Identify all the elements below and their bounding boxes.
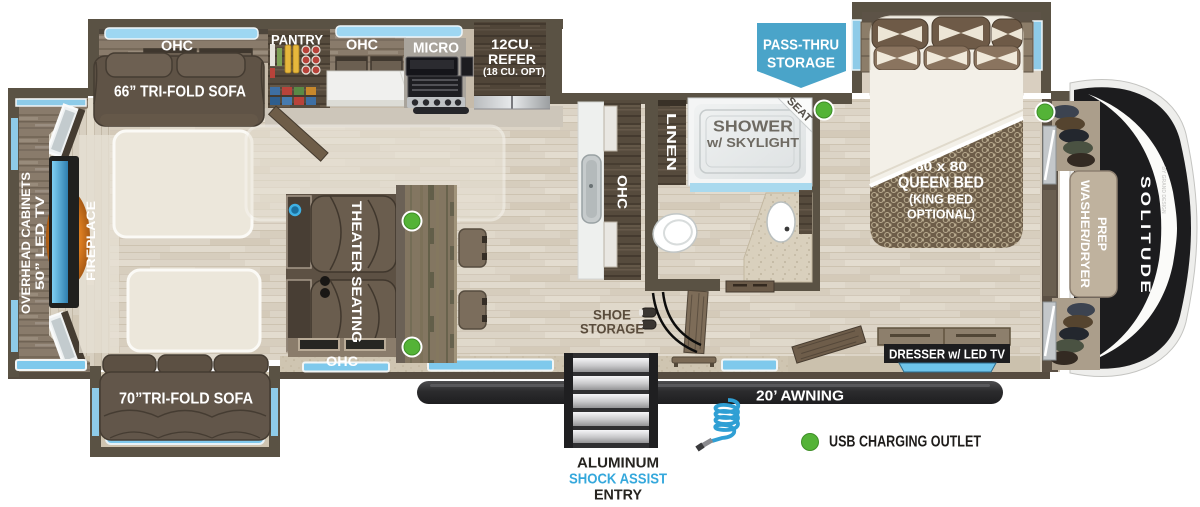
svg-text:STORAGE: STORAGE [580, 322, 644, 337]
svg-text:PREP: PREP [1095, 217, 1107, 251]
svg-text:REFER: REFER [488, 51, 536, 67]
svg-text:SHOCK ASSIST: SHOCK ASSIST [569, 471, 667, 488]
svg-text:SHOWER: SHOWER [713, 119, 793, 136]
svg-text:OHC: OHC [326, 353, 358, 369]
svg-text:60 x 80: 60 x 80 [915, 158, 967, 174]
svg-text:12CU.: 12CU. [491, 36, 533, 52]
svg-text:SHOE: SHOE [593, 308, 631, 323]
svg-text:ENTRY: ENTRY [594, 487, 642, 504]
svg-text:66” TRI-FOLD SOFA: 66” TRI-FOLD SOFA [114, 84, 246, 101]
svg-text:FIREPLACE: FIREPLACE [84, 201, 98, 281]
svg-text:OHC: OHC [161, 38, 193, 55]
svg-text:SOLITUDE: SOLITUDE [1138, 176, 1154, 296]
svg-text:(KING BED: (KING BED [909, 192, 973, 207]
svg-text:WASHER/DRYER: WASHER/DRYER [1078, 180, 1090, 289]
svg-text:THEATER SEATING: THEATER SEATING [349, 201, 365, 343]
svg-text:w/ SKYLIGHT: w/ SKYLIGHT [706, 136, 800, 150]
svg-text:PASS-THRU: PASS-THRU [763, 37, 839, 54]
svg-text:STORAGE: STORAGE [767, 55, 835, 72]
svg-text:(18 CU. OPT): (18 CU. OPT) [483, 66, 545, 78]
svg-text:OVERHEAD CABINETS: OVERHEAD CABINETS [21, 172, 33, 314]
svg-text:LINEN: LINEN [664, 113, 678, 171]
svg-text:OHC: OHC [615, 175, 630, 209]
svg-text:70”TRI-FOLD SOFA: 70”TRI-FOLD SOFA [119, 391, 253, 408]
svg-text:USB CHARGING OUTLET: USB CHARGING OUTLET [829, 434, 981, 451]
svg-text:PANTRY: PANTRY [271, 33, 323, 48]
svg-text:20’ AWNING: 20’ AWNING [756, 388, 844, 405]
svg-text:QUEEN BED: QUEEN BED [898, 175, 984, 192]
svg-text:BY GRAND DESIGN: BY GRAND DESIGN [1160, 166, 1166, 214]
svg-text:OPTIONAL): OPTIONAL) [907, 207, 975, 222]
svg-text:50” LED TV: 50” LED TV [35, 196, 47, 290]
svg-text:ALUMINUM: ALUMINUM [577, 455, 659, 472]
svg-text:DRESSER w/ LED TV: DRESSER w/ LED TV [889, 347, 1005, 362]
svg-text:OHC: OHC [346, 37, 378, 54]
svg-text:MICRO: MICRO [413, 40, 459, 57]
